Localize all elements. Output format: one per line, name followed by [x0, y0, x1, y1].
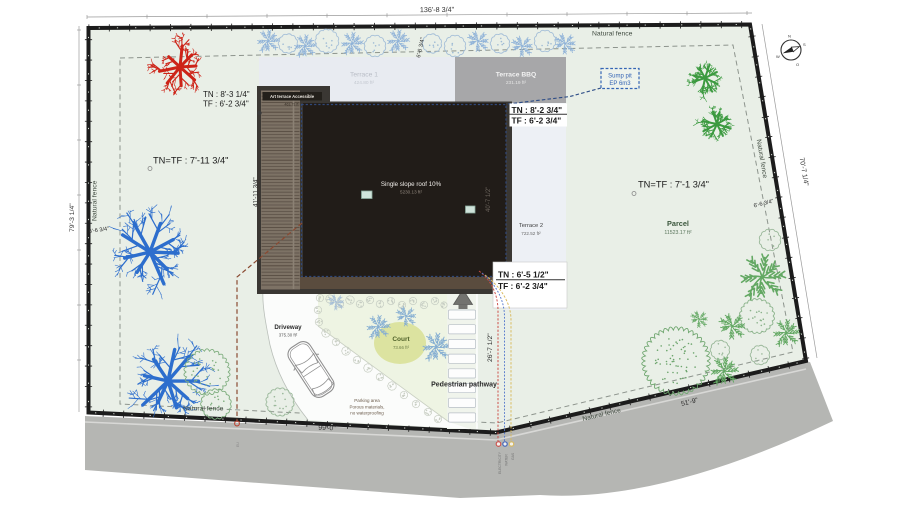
svg-text:TN : 8'-2 3/4": TN : 8'-2 3/4"	[512, 105, 563, 115]
svg-text:Parcel: Parcel	[667, 219, 689, 228]
svg-text:Terrace BBQ: Terrace BBQ	[496, 72, 536, 79]
svg-text:W: W	[776, 54, 780, 59]
svg-text:O: O	[796, 62, 799, 67]
svg-text:Terrace 1: Terrace 1	[350, 72, 378, 79]
svg-text:EU: EU	[236, 442, 240, 447]
svg-text:TF : 6'-2 3/4": TF : 6'-2 3/4"	[512, 116, 562, 126]
svg-text:79'-3 1/4": 79'-3 1/4"	[69, 203, 76, 232]
svg-text:S: S	[803, 42, 806, 47]
svg-text:99'-0": 99'-0"	[318, 425, 336, 433]
svg-text:Pedestrian pathway: Pedestrian pathway	[431, 382, 497, 389]
svg-text:Terrace 2: Terrace 2	[519, 223, 543, 229]
svg-text:TF : 6'-2 3/4": TF : 6'-2 3/4"	[203, 100, 249, 109]
svg-text:Single slope roof 10%: Single slope roof 10%	[381, 181, 442, 188]
svg-text:Art terrace Accessible: Art terrace Accessible	[270, 94, 315, 99]
svg-text:375.30 ft²: 375.30 ft²	[279, 333, 298, 338]
svg-text:TN : 8'-3 1/4": TN : 8'-3 1/4"	[203, 90, 250, 99]
svg-text:Sump pit: Sump pit	[608, 74, 632, 80]
svg-text:41'-11 3/4": 41'-11 3/4"	[253, 177, 260, 207]
svg-text:TN=TF : 7'-1 3/4": TN=TF : 7'-1 3/4"	[638, 180, 709, 190]
svg-text:Court: Court	[392, 336, 410, 343]
svg-text:231.19 ft²: 231.19 ft²	[506, 80, 527, 86]
svg-text:no waterproofing: no waterproofing	[350, 411, 384, 416]
svg-text:722.52 ft²: 722.52 ft²	[521, 231, 541, 236]
svg-text:TF : 6'-2 3/4": TF : 6'-2 3/4"	[498, 281, 548, 291]
svg-text:11523.17 ft²: 11523.17 ft²	[664, 230, 692, 236]
svg-text:GAS: GAS	[511, 452, 515, 460]
svg-text:Driveway: Driveway	[274, 324, 302, 331]
svg-text:TN=TF : 7'-11 3/4": TN=TF : 7'-11 3/4"	[153, 156, 228, 166]
svg-text:Natural fence: Natural fence	[183, 406, 224, 413]
svg-text:EP 6m3: EP 6m3	[609, 81, 631, 87]
svg-text:5230.13 ft²: 5230.13 ft²	[400, 190, 422, 195]
svg-text:N: N	[788, 34, 791, 39]
svg-text:Porous materials,: Porous materials,	[349, 404, 384, 409]
svg-text:73.66 ft²: 73.66 ft²	[393, 345, 410, 350]
svg-text:424.80 ft²: 424.80 ft²	[354, 80, 375, 86]
svg-text:26'-7 1/2": 26'-7 1/2"	[487, 333, 494, 362]
svg-text:Natural fence: Natural fence	[592, 31, 633, 38]
svg-text:40'-7 1/2": 40'-7 1/2"	[486, 187, 492, 212]
svg-text:WATER: WATER	[505, 454, 509, 466]
svg-text:136'-8 3/4": 136'-8 3/4"	[420, 5, 455, 14]
svg-text:TN : 6'-5 1/2": TN : 6'-5 1/2"	[498, 270, 549, 280]
svg-text:Natural fence: Natural fence	[92, 180, 99, 221]
svg-text:ELECTRICITY: ELECTRICITY	[498, 451, 502, 474]
svg-text:Parking area: Parking area	[354, 398, 380, 403]
svg-text:463.73 ft²: 463.73 ft²	[284, 103, 300, 107]
